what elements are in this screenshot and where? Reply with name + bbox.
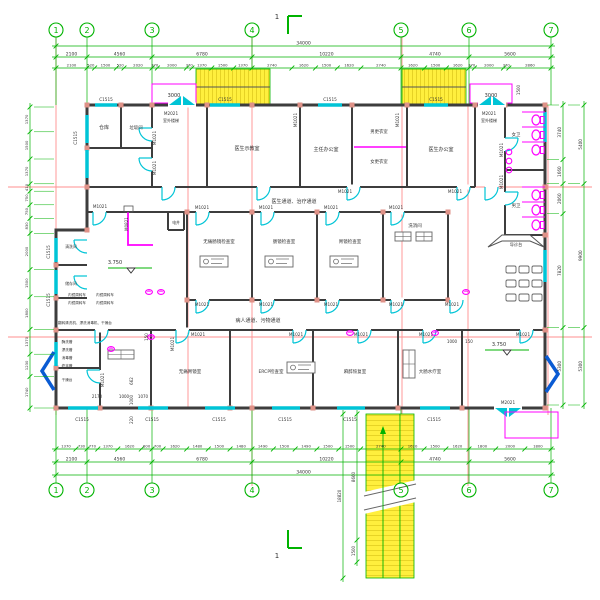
dim-label: 1500 — [279, 444, 289, 449]
dim-label: 5600 — [504, 457, 516, 463]
column — [54, 366, 59, 371]
dim-label: 520 — [87, 63, 95, 68]
dim-label: 1370 — [103, 444, 113, 449]
door-tag: M1021 — [293, 113, 298, 128]
dim-label: 9900 — [578, 250, 583, 261]
grid-bubble-number: 6 — [466, 486, 471, 495]
floor-drain — [109, 348, 112, 349]
window-tag: C1515 — [427, 417, 441, 422]
floor-drain — [464, 291, 467, 292]
dim-label: 2000 — [167, 63, 177, 68]
column — [85, 103, 90, 108]
dim-label: 1370 — [197, 63, 207, 68]
dim-label: 220 — [129, 416, 134, 424]
door-gap — [391, 210, 404, 215]
room-label: 主任办公室 — [313, 146, 338, 153]
dim-label: 4560 — [114, 52, 126, 58]
dim-label: 8660 — [351, 471, 356, 482]
dim-label: 1480 — [236, 444, 246, 449]
dim-label: 2100 — [66, 457, 78, 463]
column — [250, 406, 255, 411]
door-gap — [503, 192, 508, 205]
room-label: 男卫 — [512, 203, 521, 209]
dim-label: 2060 — [557, 193, 562, 204]
canopy-dim: 3000 — [168, 93, 181, 99]
dim-label: 800 — [143, 444, 151, 449]
dim-label: 1620 — [408, 63, 418, 68]
column — [543, 233, 548, 238]
dim-label: 1620 — [170, 444, 180, 449]
dim-label: 1500 — [218, 63, 228, 68]
dim-label: 1500 — [351, 545, 356, 556]
door-tag: M1021 — [516, 332, 531, 337]
door-gap — [485, 185, 498, 190]
door-tag: M1021 — [195, 205, 210, 210]
section-mark-top — [288, 16, 302, 34]
stair-label: 室外楼梯 — [481, 117, 497, 123]
dim-label: 1500 — [345, 444, 355, 449]
room-label: 大肠水疗室 — [419, 368, 442, 375]
door-tag: M1021 — [499, 143, 504, 158]
dim-label: 770 — [89, 444, 97, 449]
dim-label: 1500 — [431, 63, 441, 68]
level-triangle — [127, 268, 135, 273]
dim-label: 1490 — [258, 444, 268, 449]
dim-label: 700 — [154, 444, 162, 449]
dim-label: 750 — [24, 207, 29, 215]
door-tag: M1021 — [152, 131, 157, 146]
room-label: 女更衣室 — [370, 158, 388, 165]
grid-bubble-number: 4 — [249, 26, 254, 35]
dim-label: 5300 — [557, 361, 562, 372]
dim-label: 1070 — [138, 394, 149, 399]
dim-label: 2170 — [92, 394, 103, 399]
door-tag: M1021 — [100, 373, 105, 388]
column — [98, 406, 103, 411]
toilet-fixture — [532, 130, 540, 140]
room-label: 清洗间 — [65, 244, 77, 249]
exam-bed — [287, 362, 315, 373]
door-tag: M1021 — [324, 205, 339, 210]
waiting-seat — [506, 280, 516, 287]
dim-label: 34000 — [296, 41, 311, 47]
dim-label: 1480 — [193, 444, 203, 449]
level-triangle — [503, 350, 511, 355]
room-label: 男更衣室 — [370, 128, 388, 135]
equipment-label: 内镜周转车 — [68, 292, 86, 297]
door-gap — [85, 276, 90, 289]
dim-label: 1620 — [453, 444, 463, 449]
door-gap — [93, 210, 106, 215]
grid-bubble-number: 3 — [149, 486, 154, 495]
level-label: 3.750 — [492, 342, 506, 348]
dim-label: 2000 — [505, 444, 515, 449]
column — [250, 210, 255, 215]
waiting-seat — [506, 294, 516, 301]
floor-plan-page: 3400021004560678010220474056002100520150… — [0, 0, 600, 600]
column — [315, 210, 320, 215]
dim-label: 1620 — [453, 63, 463, 68]
door-tag: M1021 — [289, 332, 304, 337]
dim-label: 2000 — [24, 246, 29, 256]
grid-bubble-number: 5 — [398, 26, 403, 35]
column — [54, 263, 59, 268]
dim-label: 662 — [129, 377, 134, 385]
room-label: 无痛胃镜室 — [179, 368, 202, 375]
section-mark-bottom — [288, 530, 302, 548]
column — [350, 103, 355, 108]
dim-label: 1000 — [447, 339, 458, 344]
dim-label: 1620 — [344, 63, 354, 68]
door-tag: M1021 — [170, 337, 175, 352]
dim-label: 1800 — [533, 444, 543, 449]
room-label: 无痛肠镜检查室 — [203, 238, 235, 245]
window-tag: C1515 — [429, 97, 443, 102]
grid-bubble-number: 2 — [84, 26, 89, 35]
column — [54, 296, 59, 301]
column — [311, 406, 316, 411]
column — [150, 103, 155, 108]
dim-label: 1500 — [516, 84, 521, 95]
dim-label: 1370 — [24, 336, 29, 346]
column — [250, 298, 255, 303]
level-label: 3.750 — [108, 260, 122, 266]
dim-label: 2740 — [376, 63, 386, 68]
section-number: 1 — [275, 552, 279, 560]
dim-label: 3740 — [557, 127, 562, 138]
dim-label: 370 — [151, 63, 159, 68]
column — [473, 103, 478, 108]
equipment-label: 漂洗槽 — [62, 347, 73, 352]
equipment-label: 酶洗槽 — [62, 339, 73, 344]
door-tag: M1021 — [395, 113, 400, 128]
dim-label: 1500 — [322, 63, 332, 68]
dim-label: 10220 — [319, 457, 333, 463]
door-gap — [176, 328, 189, 333]
room-label: 垃圾间 — [129, 124, 142, 131]
column — [85, 146, 90, 151]
canopy-dim: 3000 — [485, 93, 498, 99]
equipment-label: 消毒槽 — [62, 355, 73, 360]
equipment-label: 内镜周转车 — [96, 292, 114, 297]
waiting-seat — [519, 280, 529, 287]
room-label: 肠镜检查室 — [273, 238, 296, 245]
dim-label: 2020 — [133, 63, 143, 68]
door-tag: M1021 — [499, 175, 504, 190]
window-tag: C1515 — [75, 417, 89, 422]
door-gap — [257, 185, 270, 190]
dim-label: 370 — [503, 63, 511, 68]
dim-label: 1500 — [430, 444, 440, 449]
grid-bubble-number: 4 — [249, 486, 254, 495]
dim-label: 1500 — [24, 278, 29, 288]
window-tag: C1515 — [343, 417, 357, 422]
toilet-tank — [541, 207, 545, 214]
door-tag: M1021 — [354, 332, 369, 337]
grid-bubble-number: 3 — [149, 26, 154, 35]
door-tag: M1021 — [419, 332, 434, 337]
dim-label: 520 — [117, 63, 125, 68]
floor-drain — [147, 291, 150, 292]
floor-plan-svg: 3400021004560678010220474056002100520150… — [0, 0, 600, 600]
dim-label: 7820 — [557, 265, 562, 276]
column — [543, 406, 548, 411]
entrance-arrow-left — [42, 352, 54, 390]
floor-drain — [159, 291, 162, 292]
dim-label: 1370 — [24, 114, 29, 124]
dim-label: 1500 — [214, 444, 224, 449]
room-label: 电井 — [172, 220, 180, 225]
dim-label: 6780 — [196, 457, 208, 463]
toilet-fixture — [532, 145, 540, 155]
corridor-label: 医生通道、治疗通道 — [271, 198, 316, 205]
window-tag: C1515 — [323, 97, 337, 102]
dim-label: 370 — [468, 63, 476, 68]
toilet-fixture — [532, 115, 540, 125]
room-label: 麻醉恢复室 — [344, 368, 367, 375]
door-tag: M1021 — [259, 205, 274, 210]
door-gap — [326, 210, 339, 215]
dim-label: 1370 — [61, 444, 71, 449]
dim-label: 150 — [144, 333, 149, 341]
dim-label: 410 — [24, 183, 29, 191]
waiting-seat — [532, 266, 542, 273]
grid-bubble-number: 1 — [53, 26, 58, 35]
equipment-label: 内镜周转车 — [68, 300, 86, 305]
waiting-seat — [532, 294, 542, 301]
dim-label: 1620 — [408, 444, 418, 449]
floor-drain — [146, 290, 153, 295]
column — [85, 228, 90, 233]
column — [543, 328, 548, 333]
column — [85, 185, 90, 190]
waiting-seat — [506, 266, 516, 273]
door-tag: M1021 — [152, 161, 157, 176]
door-tag: M1021 — [389, 205, 404, 210]
exam-bed — [200, 256, 228, 267]
equipment-label: 翻转清洗机、漂洗消毒机、干燥台 — [58, 320, 112, 325]
dim-label: 4740 — [429, 457, 441, 463]
window-tag: C1515 — [73, 131, 78, 145]
dim-label: 5400 — [578, 139, 583, 150]
column — [54, 406, 59, 411]
double-door — [183, 96, 195, 105]
door-tag: M1021 — [338, 189, 353, 194]
dim-label: 18820 — [337, 489, 342, 502]
door-tag: M1021 — [389, 302, 404, 307]
door-gap — [85, 240, 90, 253]
column — [396, 406, 401, 411]
door-tag: M0821 — [124, 217, 129, 231]
column — [205, 103, 210, 108]
grid-bubble-number: 2 — [84, 486, 89, 495]
grid-bubble-number: 5 — [398, 486, 403, 495]
fixture-layer — [42, 16, 558, 548]
dimension-layer: 3400021004560678010220474056002100520150… — [24, 41, 586, 583]
window-tag: C1515 — [145, 417, 159, 422]
pipe-line — [128, 212, 153, 245]
door-tag: M1021 — [191, 332, 206, 337]
column — [543, 103, 548, 108]
toilet-tank — [541, 147, 545, 154]
column — [298, 103, 303, 108]
window-tag: C1515 — [218, 97, 232, 102]
grid-bubble-number: 7 — [548, 486, 553, 495]
room-label: 洗消间 — [408, 222, 422, 229]
dim-label: 2000 — [484, 63, 494, 68]
dim-label: 5600 — [504, 52, 516, 58]
toilet-fixture — [532, 220, 540, 230]
exam-bed — [330, 256, 358, 267]
window-tag: C1515 — [278, 417, 292, 422]
window-tag: C1515 — [212, 417, 226, 422]
dim-label: 2740 — [267, 63, 277, 68]
grid-bubble-number: 1 — [53, 486, 58, 495]
column — [460, 406, 465, 411]
window-tag: C1515 — [99, 97, 113, 102]
dim-label: 1740 — [24, 387, 29, 397]
dim-label: 830 — [24, 222, 29, 230]
room-label: 女卫 — [512, 131, 521, 138]
column — [185, 298, 190, 303]
column — [381, 210, 386, 215]
dim-label: 1800 — [24, 308, 29, 318]
floor-drain — [158, 290, 165, 295]
room-label: ERCP检查室 — [258, 368, 284, 375]
equipment-label: 内镜周转车 — [96, 300, 114, 305]
room-label: 医生示教室 — [234, 145, 259, 152]
dim-label: 1370 — [24, 166, 29, 176]
waiting-seat — [519, 266, 529, 273]
equipment-label: 干燥台 — [62, 377, 73, 382]
door-tag: M1021 — [259, 302, 274, 307]
stair-label: 室外楼梯 — [163, 117, 179, 123]
dim-label: 2100 — [67, 63, 77, 68]
dim-label: 1500 — [101, 63, 111, 68]
dim-label: 10220 — [319, 52, 333, 58]
door-tag: M1021 — [195, 302, 210, 307]
room-label: 仓库 — [99, 124, 109, 131]
floor-drain — [347, 331, 354, 336]
dim-label: 1230 — [24, 360, 29, 370]
exam-bed — [265, 256, 293, 267]
door-tag: M2021 — [164, 111, 179, 116]
dim-label: 6780 — [196, 52, 208, 58]
dim-label: 1000 — [119, 394, 130, 399]
room-label: 胃镜检查室 — [339, 238, 362, 245]
column — [315, 298, 320, 303]
dim-label: 2740 — [376, 444, 386, 449]
door-tag: M1021 — [448, 189, 463, 194]
dim-label: 1660 — [557, 166, 562, 177]
grid-bubbles: 12345671234567 — [49, 23, 558, 497]
column — [54, 328, 59, 333]
dim-label: 370 — [186, 63, 194, 68]
canopy-outline — [505, 412, 558, 438]
column — [250, 103, 255, 108]
toilet-tank — [541, 222, 545, 229]
dim-label: 2860 — [525, 63, 535, 68]
window-tag: C1515 — [46, 245, 51, 259]
dim-label: 1500 — [323, 444, 333, 449]
waiting-seat — [519, 294, 529, 301]
room-label: 储存间 — [65, 281, 77, 286]
dim-label: 5300 — [578, 361, 583, 372]
door-tag: M1021 — [445, 302, 460, 307]
grid-bubble-number: 7 — [548, 26, 553, 35]
grid-bubble-number: 6 — [466, 26, 471, 35]
column — [185, 210, 190, 215]
sink-fixture — [506, 158, 512, 164]
column — [405, 103, 410, 108]
corridor-label: 病人通道、污物通道 — [235, 317, 280, 324]
door-tag: M1021 — [324, 302, 339, 307]
dim-label: 1370 — [238, 63, 248, 68]
section-number: 1 — [275, 13, 279, 21]
dim-label: 150 — [465, 339, 473, 344]
dim-label: 1620 — [125, 444, 135, 449]
dim-label: 4560 — [114, 457, 126, 463]
desk-label: 导诊台 — [510, 241, 523, 248]
toilet-fixture — [532, 190, 540, 200]
dim-label: 2100 — [66, 52, 78, 58]
door-gap — [196, 210, 209, 215]
equipment-label: 终末槽 — [62, 363, 73, 368]
floor-drain — [348, 332, 351, 333]
dim-label: 730 — [78, 444, 86, 449]
toilet-tank — [541, 192, 545, 199]
dim-label: 4740 — [429, 52, 441, 58]
door-tag: M2021 — [501, 400, 516, 405]
door-gap — [162, 185, 175, 190]
dim-label: 750 — [24, 194, 29, 202]
waiting-seat — [532, 280, 542, 287]
dim-label: 1000 — [129, 394, 134, 405]
door-gap — [261, 210, 274, 215]
dim-label: 1800 — [478, 444, 488, 449]
column — [381, 298, 386, 303]
dim-label: 34000 — [296, 470, 311, 476]
door-gap — [95, 328, 108, 333]
dim-label: 1500 — [24, 140, 29, 150]
dim-label: 1490 — [301, 444, 311, 449]
room-label: 医生办公室 — [428, 146, 453, 153]
door-tag: M2021 — [482, 111, 497, 116]
window-tag: C1515 — [46, 293, 51, 307]
dim-label: 1620 — [299, 63, 309, 68]
toilet-fixture — [532, 205, 540, 215]
column — [119, 103, 124, 108]
door-tag: M1021 — [93, 204, 108, 209]
column — [446, 210, 451, 215]
